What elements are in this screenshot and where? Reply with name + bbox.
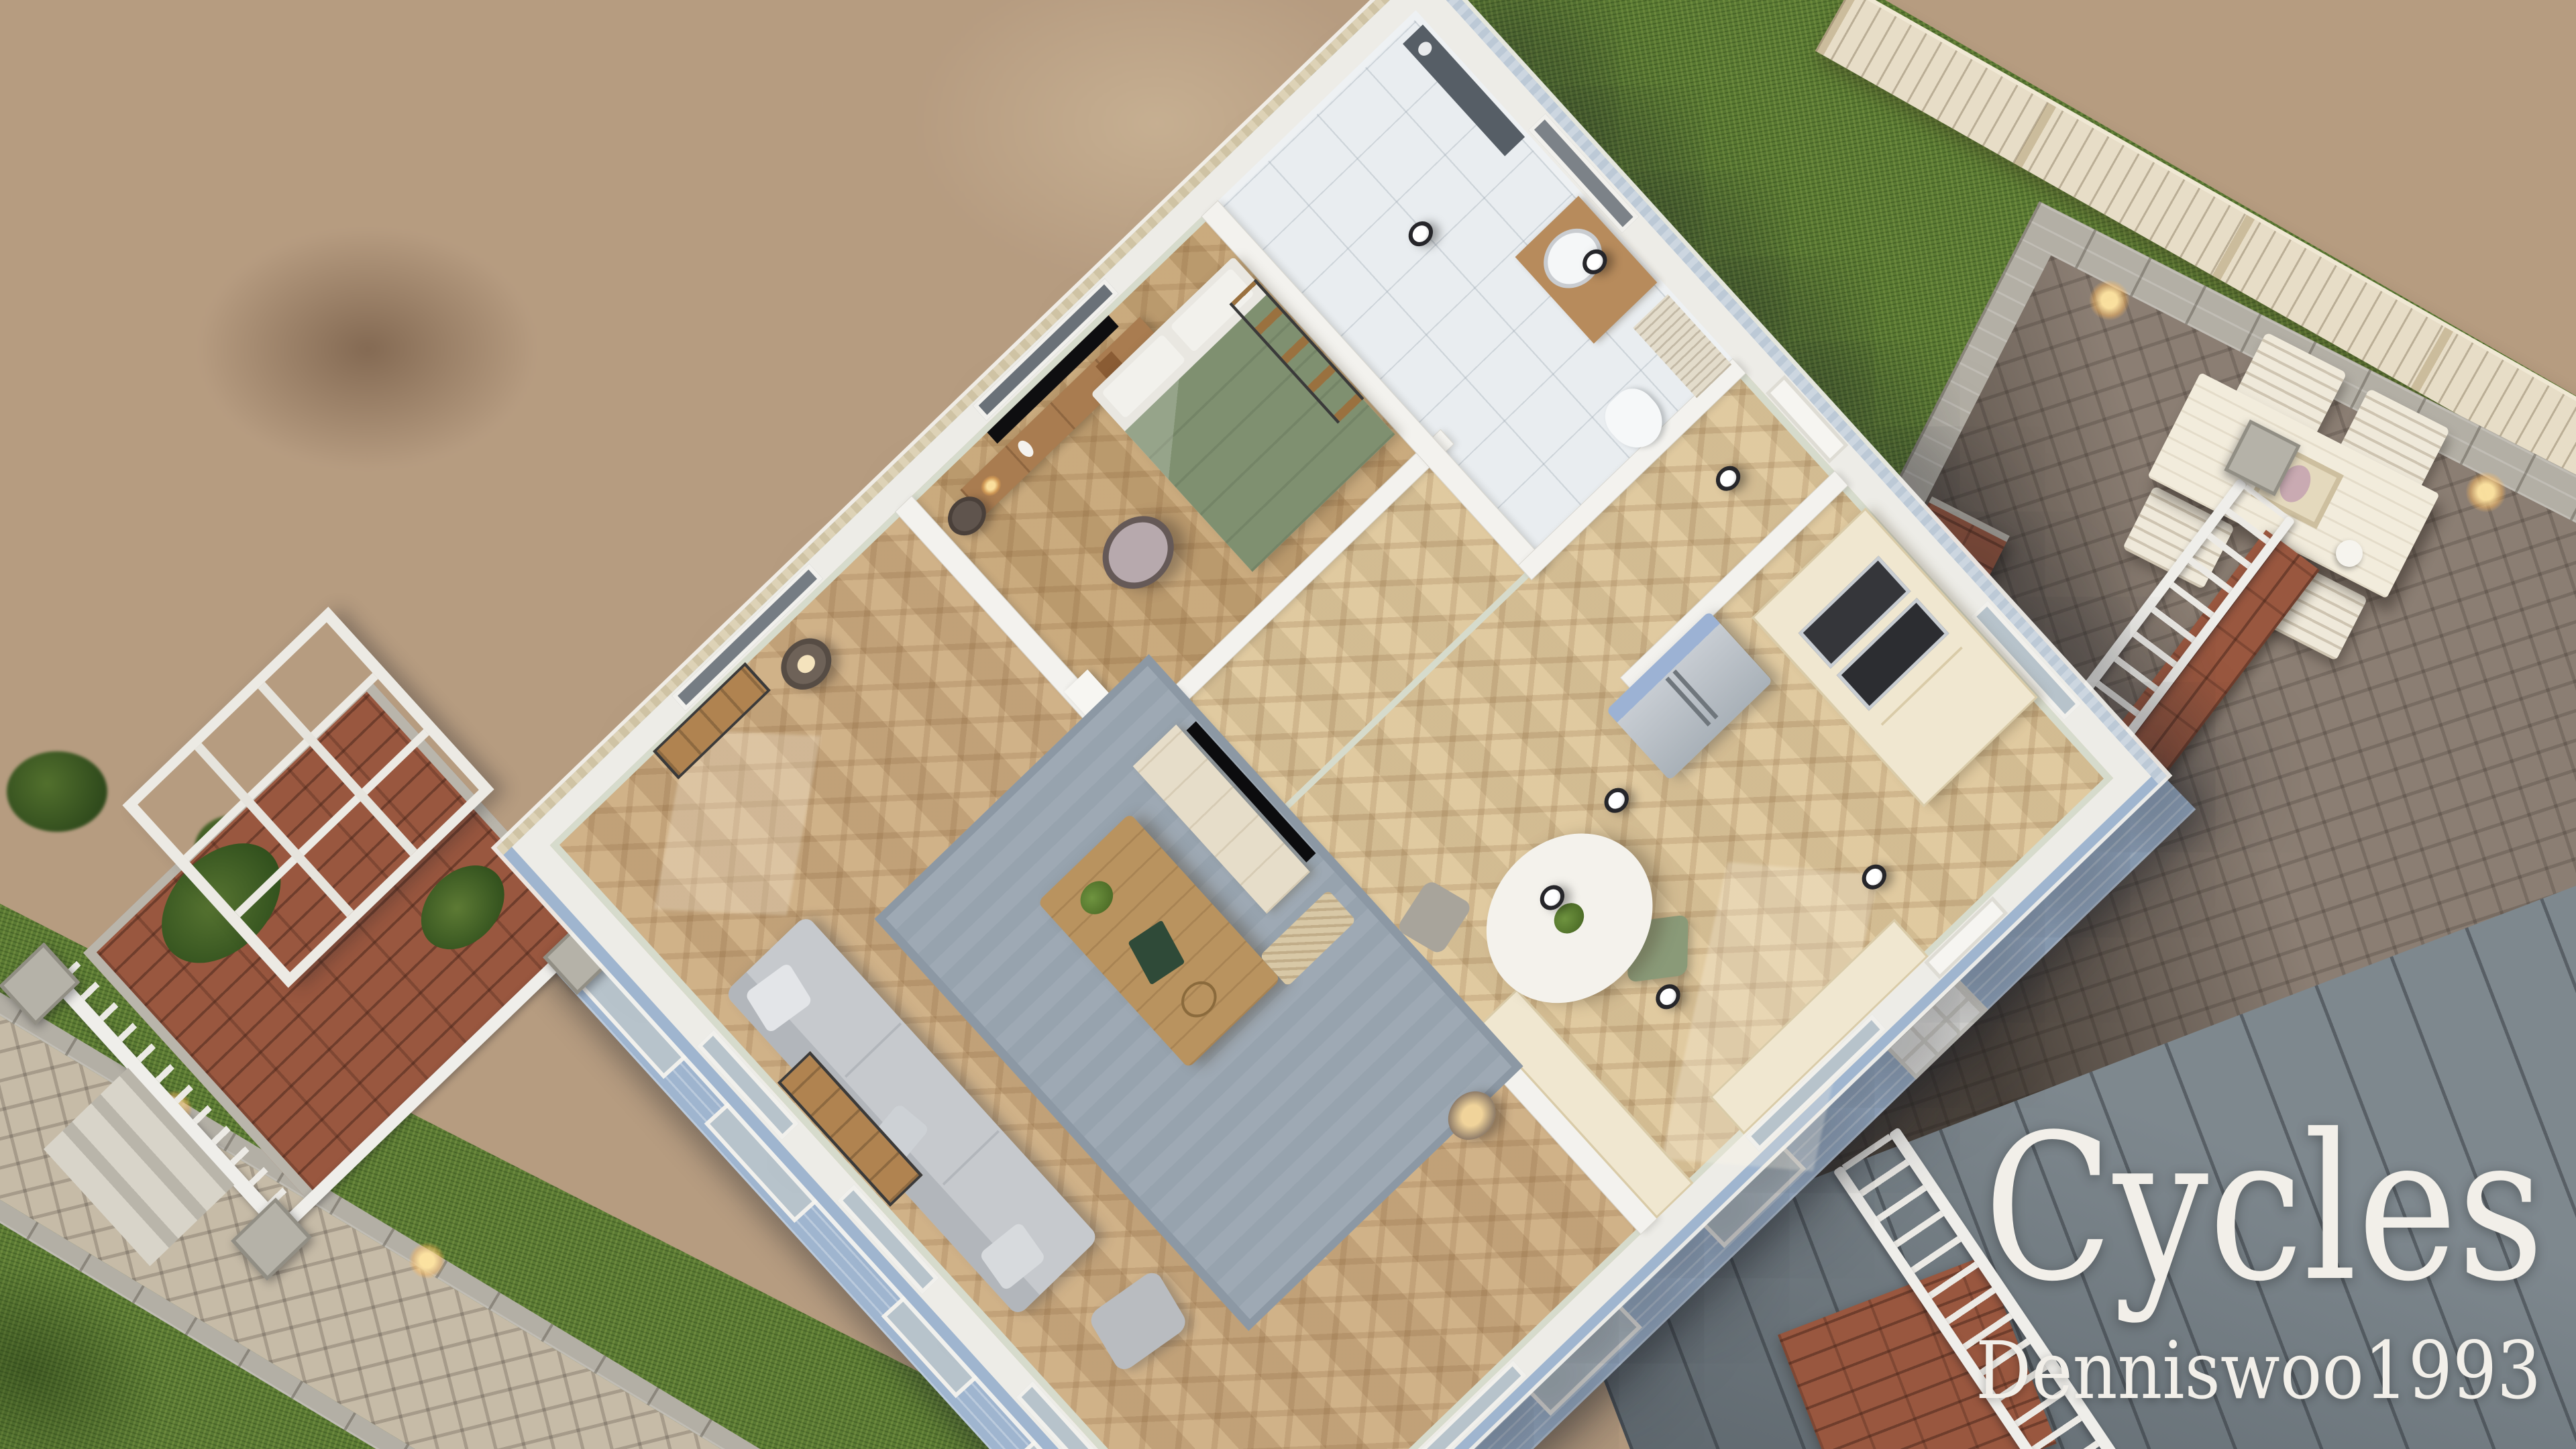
credit-text: Denniswoo1993 — [1976, 1331, 2541, 1410]
book — [1128, 920, 1185, 985]
vase — [1015, 437, 1036, 460]
table-lamp — [977, 471, 1006, 500]
shower-head — [1415, 39, 1434, 58]
potted-plant — [1074, 874, 1120, 921]
table-pot — [2331, 535, 2367, 572]
sofa-seam — [943, 1130, 1000, 1185]
lamp-bulb — [794, 651, 818, 677]
shrub — [7, 751, 107, 832]
sofa-seam — [845, 1022, 902, 1077]
render-scene: Cycles Denniswoo1993 — [0, 0, 2576, 1449]
wire-basket — [1174, 974, 1224, 1025]
title-text: Cycles — [1984, 1108, 2544, 1309]
